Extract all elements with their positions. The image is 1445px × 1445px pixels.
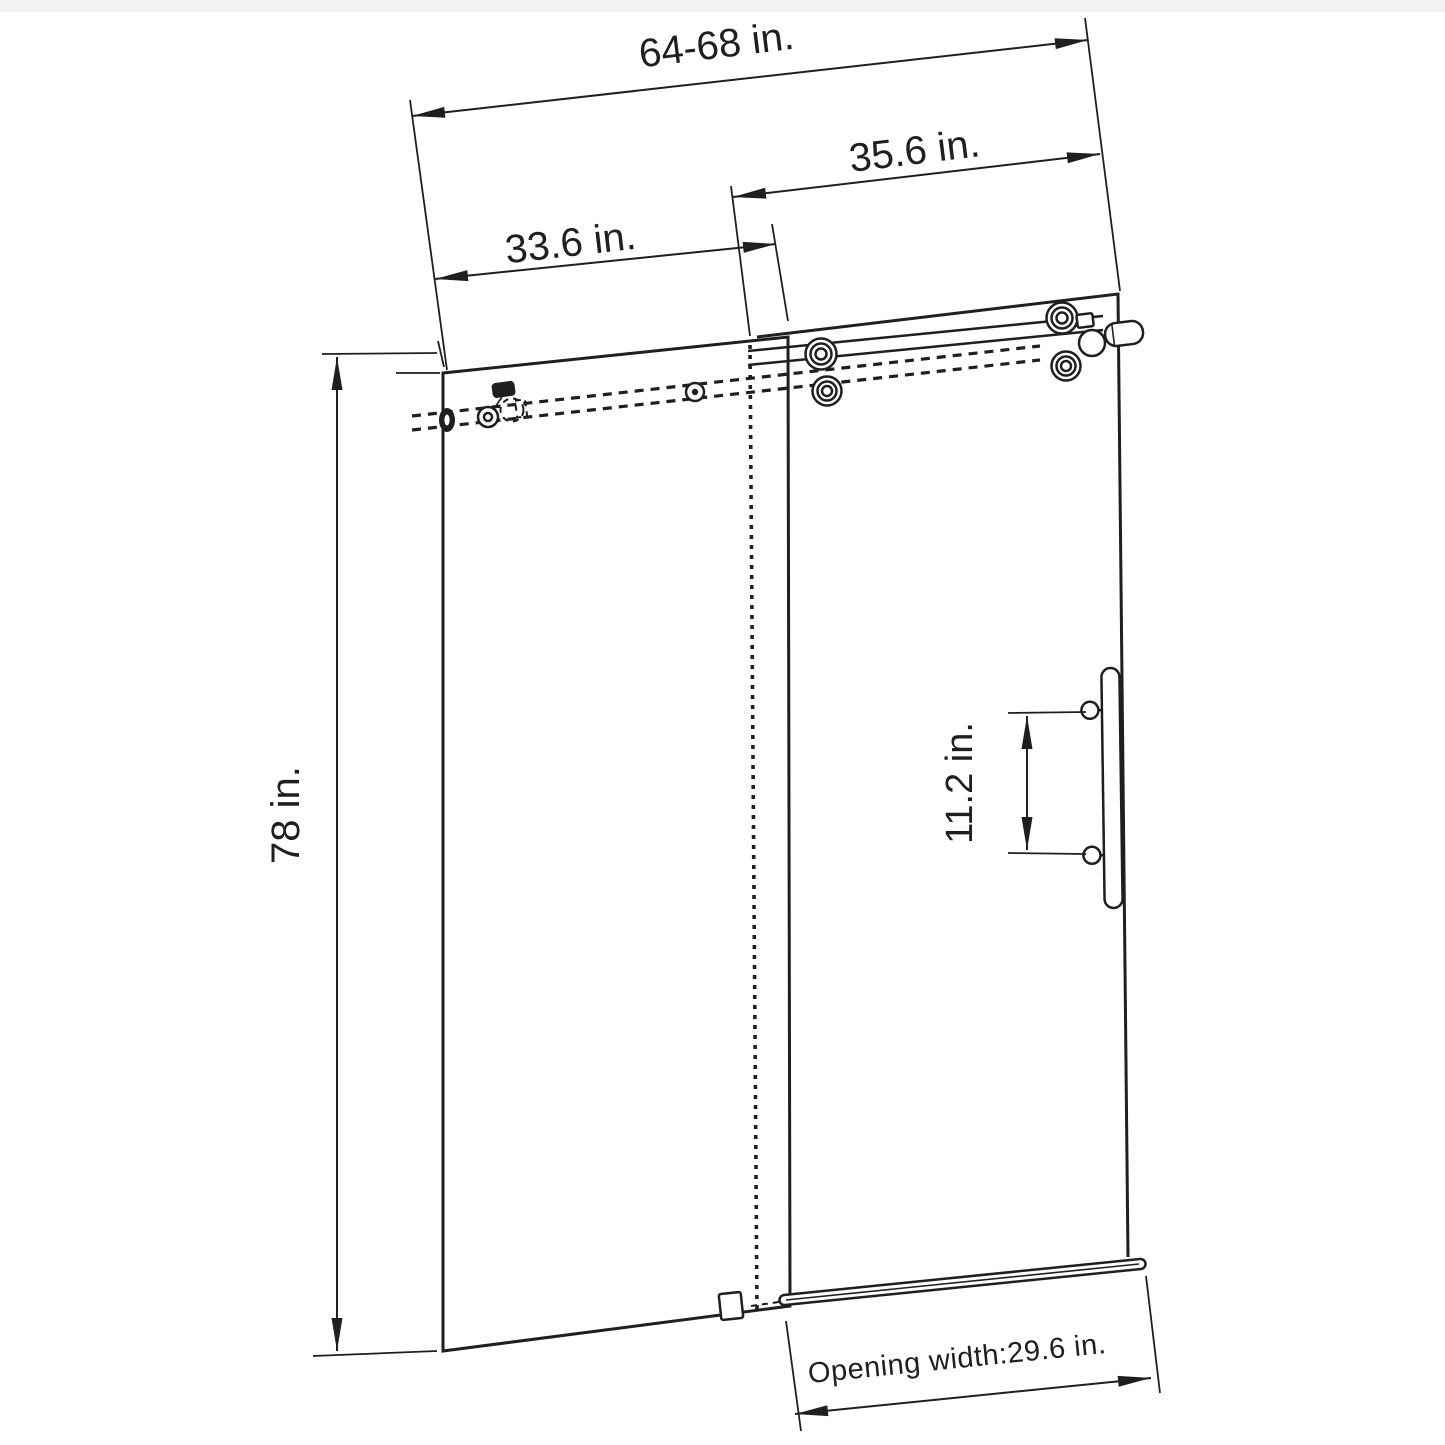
roller-hub	[1061, 361, 1071, 371]
bolt-center	[692, 389, 698, 395]
roller-hub	[1057, 313, 1068, 324]
handle-top-knob	[1081, 702, 1098, 719]
handle-bar	[1101, 668, 1122, 908]
fixed-glass-panel	[396, 337, 790, 1351]
extension-line-top	[1008, 712, 1086, 713]
roller-hub	[816, 349, 827, 360]
end-cap-body	[1104, 320, 1145, 347]
bracket-cap	[491, 380, 516, 398]
diagram-canvas: 64-68 in. 35.6 in. 33.6 in. 78 in. 11.2 …	[0, 0, 1445, 1445]
handle-bottom-knob	[1083, 847, 1100, 864]
track-right-end-cap	[1104, 320, 1145, 347]
bottom-door-guide	[719, 1292, 744, 1320]
top-edge-strip	[0, 0, 1445, 12]
hidden-roller-hub	[484, 413, 492, 421]
track-left-end-cap-center	[444, 415, 449, 426]
handle-spacing-label: 11.2 in.	[939, 722, 981, 844]
extension-line-bottom	[1008, 853, 1086, 854]
door-guide-block	[719, 1292, 744, 1320]
track-ball-joint	[1079, 330, 1105, 356]
extension-line-top	[322, 353, 437, 354]
shower-door-dimension-diagram: 64-68 in. 35.6 in. 33.6 in. 78 in. 11.2 …	[0, 0, 1445, 1445]
track-mount-bolt	[686, 383, 704, 401]
fixed-panel-outline	[443, 337, 790, 1351]
height-label: 78 in.	[264, 766, 308, 864]
roller-hub	[822, 386, 832, 396]
anti-jump-tab	[1076, 313, 1093, 328]
